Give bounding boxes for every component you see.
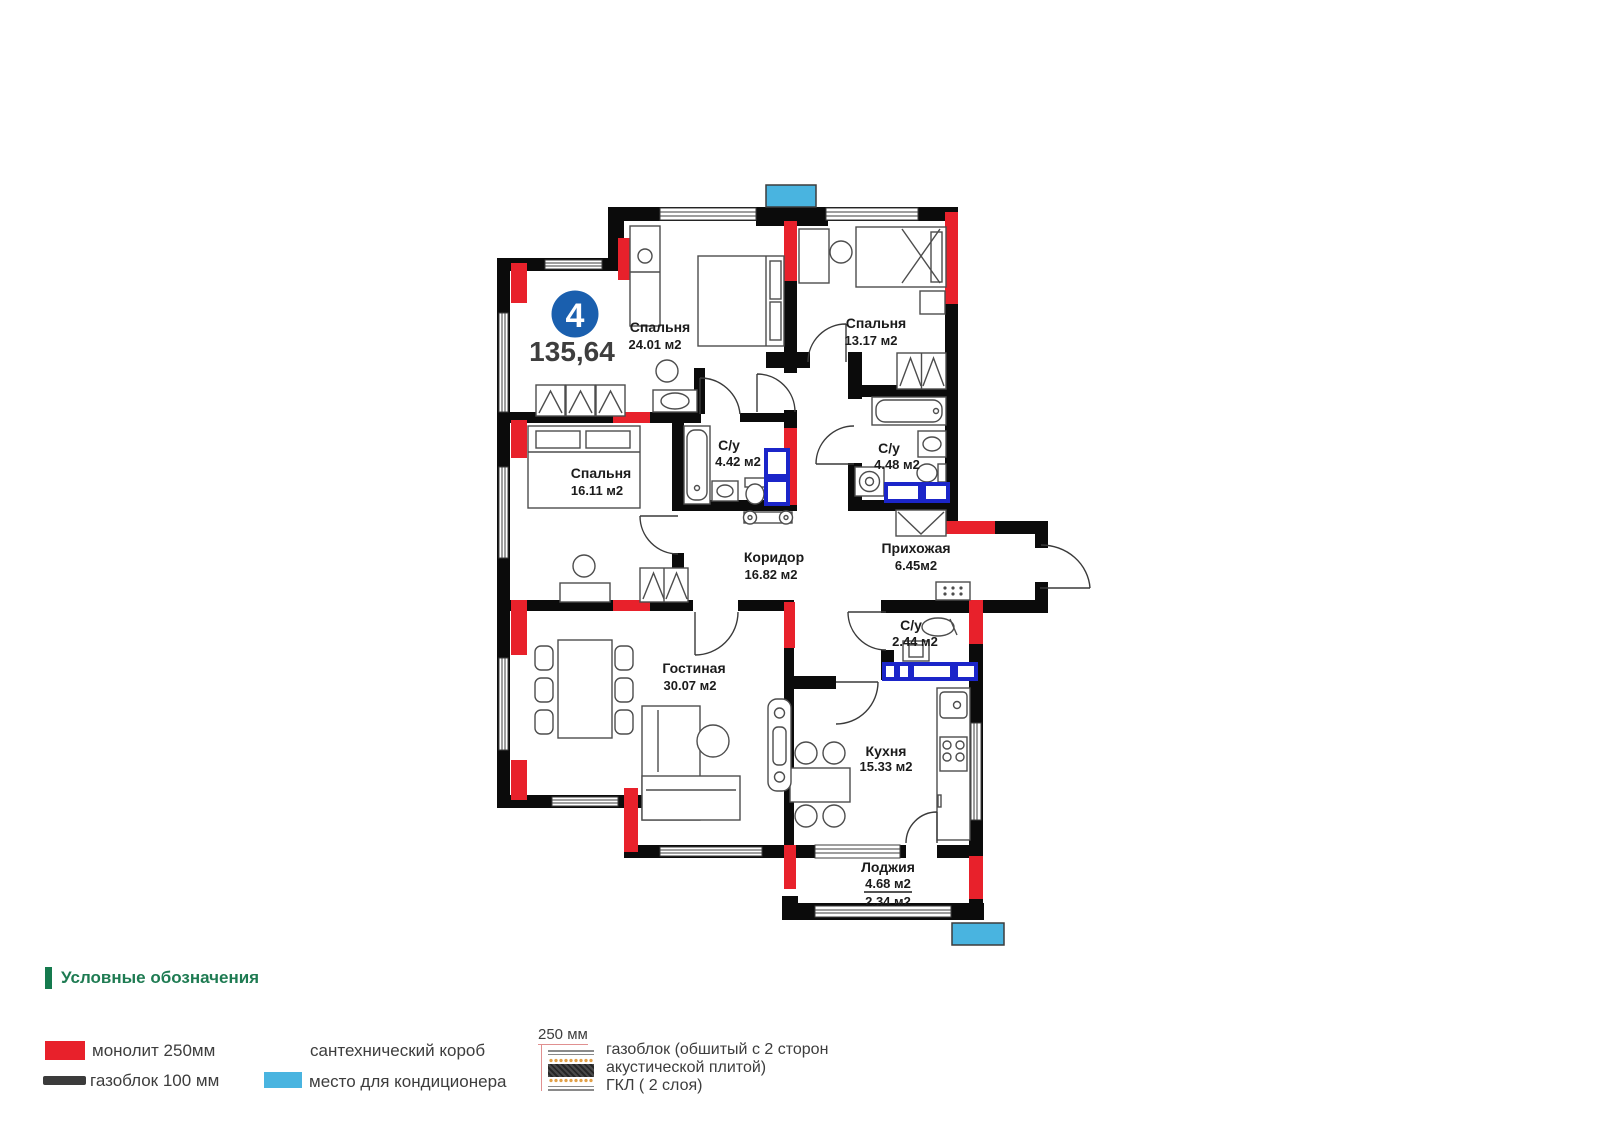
room-label-living-name: Гостиная (662, 660, 725, 676)
legend-title-bar (45, 967, 52, 989)
room-label-bedroom1-area: 24.01 м2 (629, 337, 682, 352)
legend-label-gasblock: газоблок 100 мм (90, 1071, 219, 1091)
bathroom2-fixtures (855, 397, 946, 496)
legend-swatch-gasblock (43, 1076, 86, 1085)
wall-sample-dimension: 250 мм (538, 1026, 588, 1045)
room-label-bedroom2-area: 13.17 м2 (845, 333, 898, 348)
room-label-corridor-area: 16.82 м2 (745, 567, 798, 582)
room-label-hallway-name: Прихожая (881, 540, 950, 556)
bedroom3-furniture (528, 426, 688, 602)
floor-plan-drawing: 4 135,64 Спальня 24.01 м2 Спальня 13.17 … (0, 0, 1600, 1131)
legend-swatch-ac-place (264, 1072, 302, 1088)
ac-spot-top (766, 185, 816, 207)
room-label-loggia-area-full: 4.68 м2 (865, 876, 911, 891)
room-label-bedroom1-name: Спальня (630, 319, 690, 335)
room-label-loggia-area-reduced: 2.34 м2 (865, 894, 911, 909)
legend-label-plumbing-box: сантехнический короб (310, 1041, 485, 1061)
room-label-kitchen-name: Кухня (866, 743, 907, 759)
room-label-bathroom3-area: 2.44 м2 (892, 634, 938, 649)
legend-label-monolith: монолит 250мм (92, 1041, 215, 1061)
wall-sample-line1: газоблок (обшитый с 2 сторон (606, 1041, 828, 1059)
room-label-kitchen-area: 15.33 м2 (860, 759, 913, 774)
room-label-bathroom2-area: 4.48 м2 (874, 457, 920, 472)
wall-sample-swatch (548, 1050, 594, 1091)
room-label-bedroom3-name: Спальня (571, 465, 631, 481)
apartment-number: 4 (566, 297, 585, 335)
wall-sample-line2: акустической плитой) (606, 1059, 828, 1077)
room-label-corridor-name: Коридор (744, 549, 804, 565)
bedroom2-furniture (799, 227, 946, 389)
room-label-bathroom1-name: С/у (718, 437, 740, 453)
legend-title: Условные обозначения (45, 967, 259, 989)
legend-title-text: Условные обозначения (61, 968, 259, 988)
legend-swatch-monolith (45, 1041, 85, 1060)
room-label-hallway-area: 6.45м2 (895, 558, 937, 573)
room-label-living-area: 30.07 м2 (664, 678, 717, 693)
wall-sample-dimension-line (541, 1045, 542, 1091)
room-label-bathroom1-area: 4.42 м2 (715, 454, 761, 469)
legend-label-ac-place: место для кондиционера (309, 1072, 507, 1092)
wall-sample-line3: ГКЛ ( 2 слоя) (606, 1077, 828, 1095)
apartment-total-area: 135,64 (529, 336, 615, 367)
ac-spot-bottom (952, 923, 1004, 945)
floor-plan-page: 4 135,64 Спальня 24.01 м2 Спальня 13.17 … (0, 0, 1600, 1131)
room-label-bathroom3-name: С/у (900, 617, 922, 633)
room-label-loggia-name: Лоджия (861, 859, 915, 875)
room-label-bedroom2-name: Спальня (846, 315, 906, 331)
room-label-bedroom3-area: 16.11 м2 (571, 483, 623, 498)
wall-sample-description: газоблок (обшитый с 2 сторон акустическо… (606, 1041, 828, 1095)
room-label-bathroom2-name: С/у (878, 440, 900, 456)
apartment-badge: 4 135,64 (529, 291, 615, 368)
